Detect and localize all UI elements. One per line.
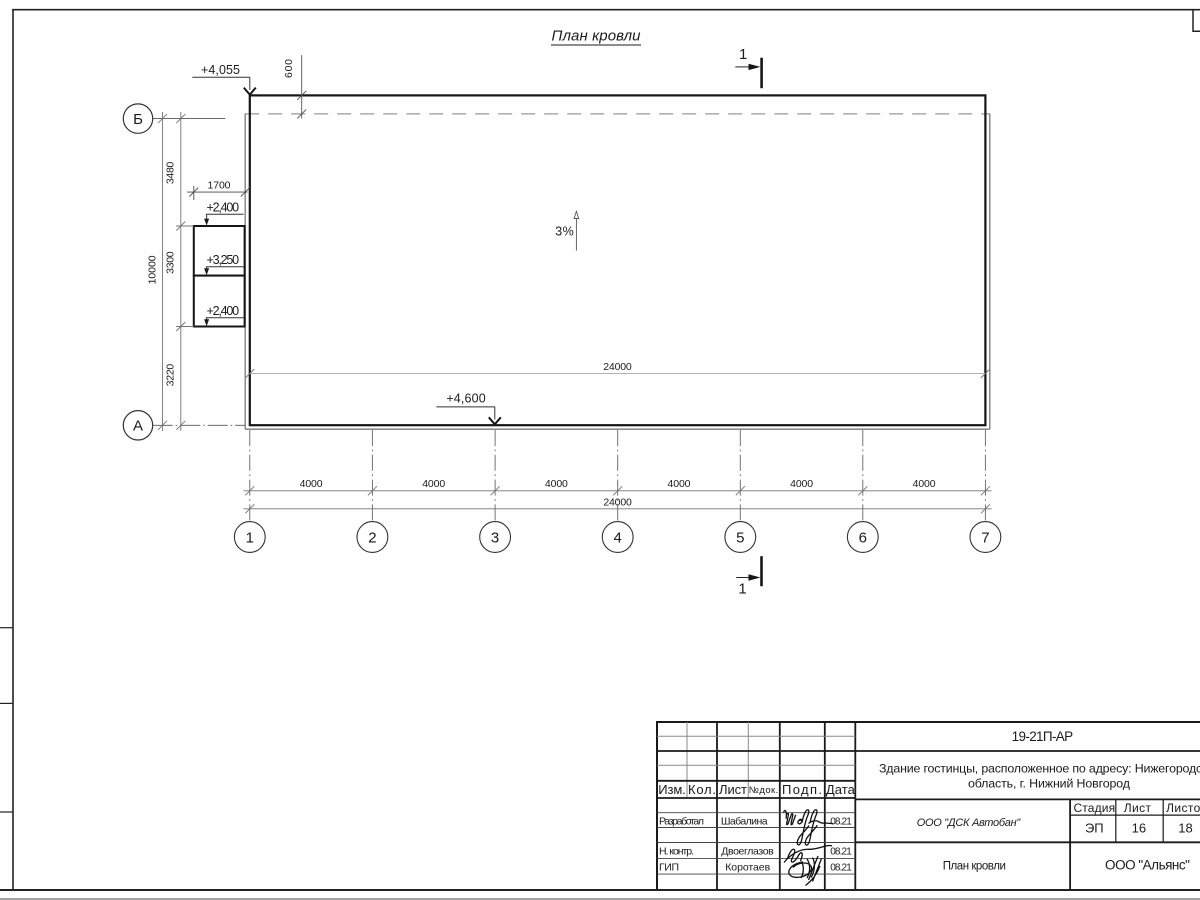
svg-text:4000: 4000 [300, 478, 323, 490]
svg-text:3%: 3% [555, 225, 574, 239]
svg-text:4: 4 [614, 530, 622, 547]
svg-text:Здание гостинцы, расположенное: Здание гостинцы, расположенное по адресу… [879, 762, 1200, 776]
svg-text:А: А [133, 418, 143, 435]
svg-text:Подп.: Подп. [782, 782, 822, 797]
svg-text:24000: 24000 [603, 361, 632, 373]
svg-text:6: 6 [859, 530, 867, 547]
svg-text:3: 3 [491, 530, 499, 547]
svg-text:ГИП: ГИП [659, 861, 679, 873]
svg-text:Б: Б [133, 111, 143, 128]
svg-text:+4,055: +4,055 [201, 63, 240, 77]
svg-text:18: 18 [1178, 821, 1192, 836]
svg-text:4000: 4000 [668, 478, 691, 490]
svg-text:4000: 4000 [545, 478, 568, 490]
svg-text:+2,400: +2,400 [207, 201, 240, 215]
svg-text:600: 600 [283, 59, 295, 78]
svg-text:Н. контр.: Н. контр. [659, 846, 694, 858]
svg-text:1: 1 [738, 581, 746, 598]
svg-text:5: 5 [736, 530, 744, 547]
svg-text:16: 16 [1132, 821, 1146, 836]
svg-text:Лист: Лист [719, 782, 747, 797]
svg-text:4000: 4000 [913, 478, 936, 490]
svg-text:Стадия: Стадия [1073, 801, 1115, 815]
svg-text:План кровли: План кровли [943, 861, 1006, 873]
svg-text:1700: 1700 [208, 179, 231, 191]
svg-text:+2,400: +2,400 [207, 304, 240, 318]
svg-text:10000: 10000 [146, 255, 158, 284]
svg-text:08.21: 08.21 [830, 816, 852, 827]
svg-text:Кол.: Кол. [688, 782, 716, 797]
svg-text:19-21П-АР: 19-21П-АР [1012, 729, 1074, 744]
svg-text:ООО "ДСК Автобан": ООО "ДСК Автобан" [917, 817, 1022, 829]
svg-text:+3,250: +3,250 [207, 253, 240, 267]
svg-text:7: 7 [981, 530, 989, 547]
svg-text:№док.: №док. [749, 785, 779, 796]
svg-text:Листов: Листов [1166, 801, 1200, 815]
svg-text:4000: 4000 [422, 478, 445, 490]
svg-text:08.21: 08.21 [830, 862, 852, 873]
svg-text:3480: 3480 [165, 161, 177, 184]
svg-text:24000: 24000 [603, 497, 632, 509]
svg-text:Лист: Лист [1124, 801, 1152, 815]
svg-text:Коротаев: Коротаев [725, 861, 770, 873]
svg-text:1: 1 [739, 46, 747, 63]
svg-text:План кровли: План кровли [552, 28, 642, 45]
svg-text:3300: 3300 [165, 251, 177, 274]
svg-text:Дата: Дата [826, 782, 856, 797]
svg-text:08.21: 08.21 [830, 847, 852, 858]
svg-text:+4,600: +4,600 [446, 391, 485, 405]
svg-text:1: 1 [246, 530, 254, 547]
svg-text:Шабалина: Шабалина [721, 815, 768, 827]
svg-text:Изм.: Изм. [658, 782, 686, 797]
svg-text:3220: 3220 [165, 364, 177, 387]
svg-text:ООО "Альянс": ООО "Альянс" [1105, 857, 1190, 872]
svg-text:2: 2 [368, 530, 376, 547]
svg-text:4000: 4000 [790, 478, 813, 490]
svg-text:Двоеглазов: Двоеглазов [721, 846, 774, 858]
svg-text:Разработал: Разработал [659, 815, 704, 827]
svg-text:ЭП: ЭП [1085, 821, 1104, 836]
svg-text:область, г. Нижний Новгород: область, г. Нижний Новгород [968, 777, 1131, 791]
